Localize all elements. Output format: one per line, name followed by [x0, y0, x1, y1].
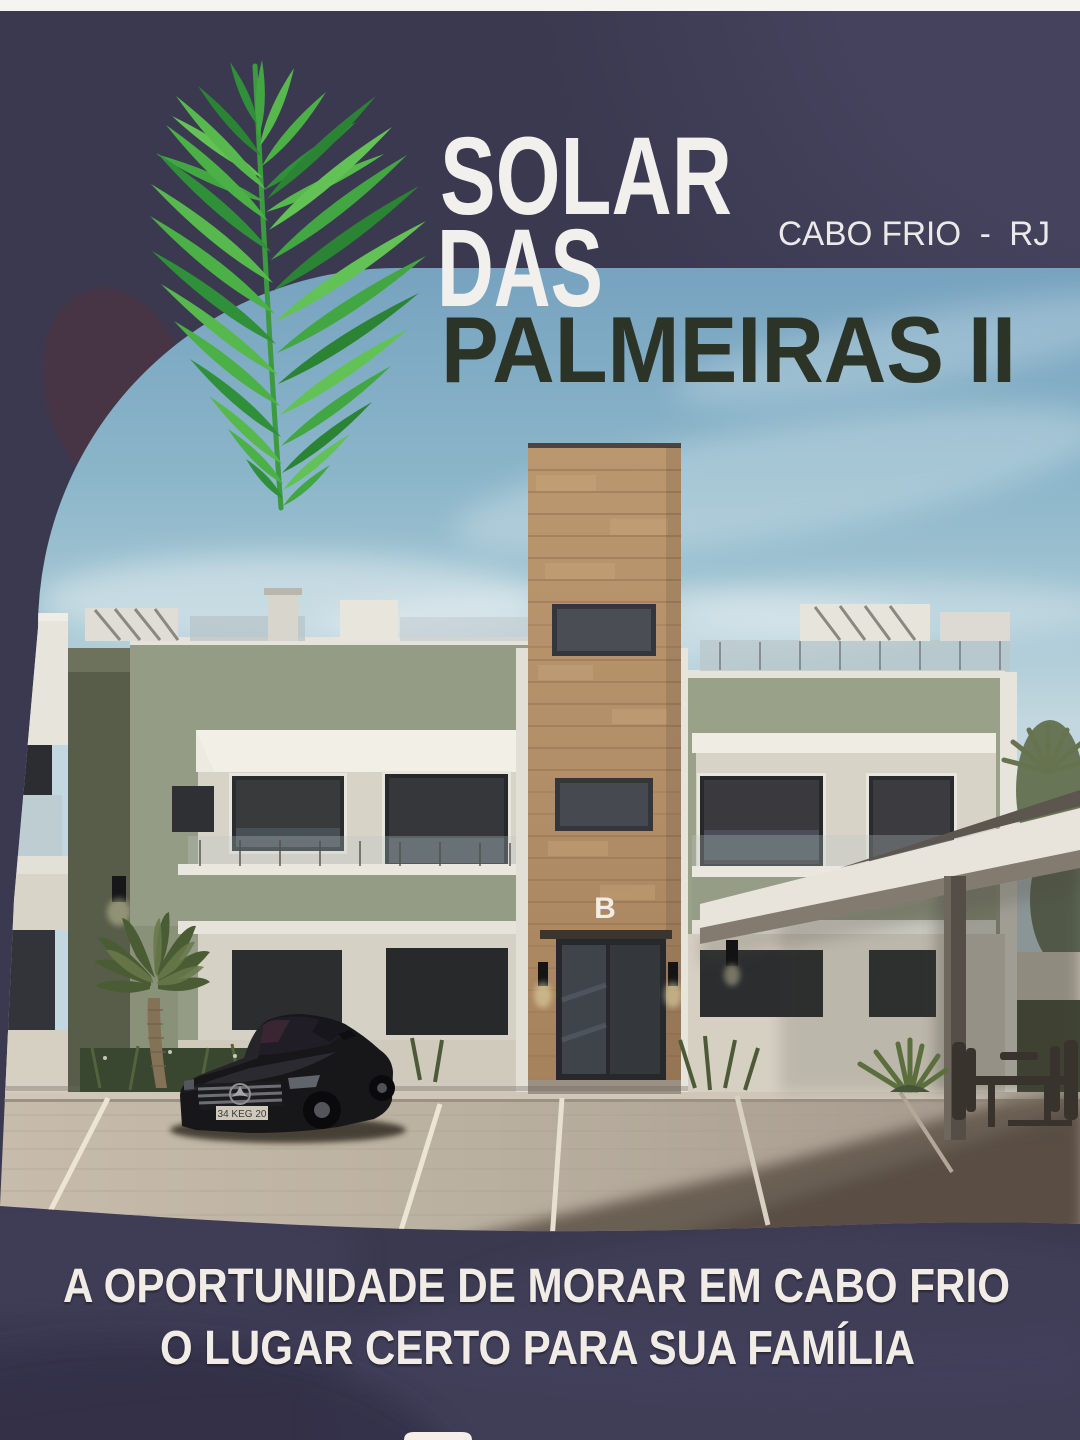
svg-text:B: B — [594, 892, 616, 925]
svg-text:A OPORTUNIDADE DE MORAR EM CAB: A OPORTUNIDADE DE MORAR EM CABO FRIO — [63, 1260, 1010, 1313]
svg-text:PALMEIRAS II: PALMEIRAS II — [441, 297, 1016, 402]
svg-text:34 KEG 20: 34 KEG 20 — [218, 1109, 267, 1120]
svg-text:CABO FRIO - RJ: CABO FRIO - RJ — [778, 215, 1050, 253]
svg-text:O LUGAR CERTO PARA SUA FAMÍLIA: O LUGAR CERTO PARA SUA FAMÍLIA — [160, 1321, 915, 1375]
